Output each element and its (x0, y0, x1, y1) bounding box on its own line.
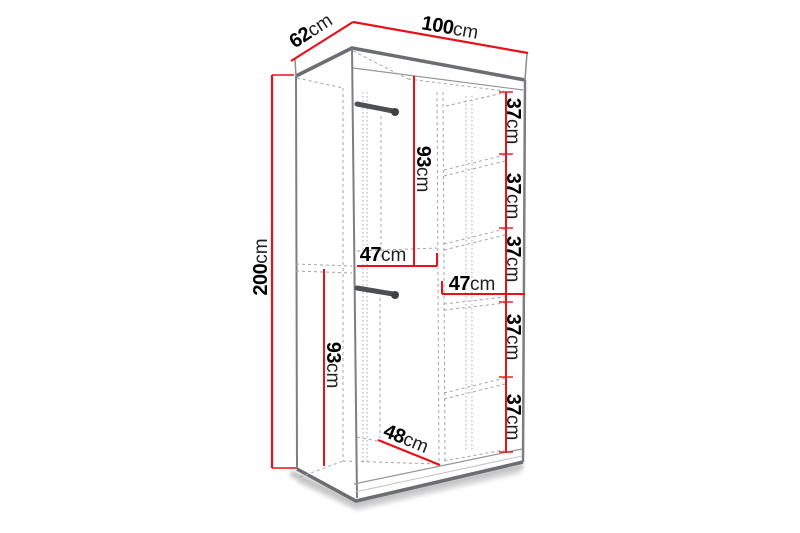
wardrobe-line-art (0, 0, 800, 533)
wardrobe-dimension-diagram: 62cm 100cm 200cm 93cm 93cm 47cm 47cm 48c… (0, 0, 800, 533)
wardrobe-structure (295, 22, 527, 501)
